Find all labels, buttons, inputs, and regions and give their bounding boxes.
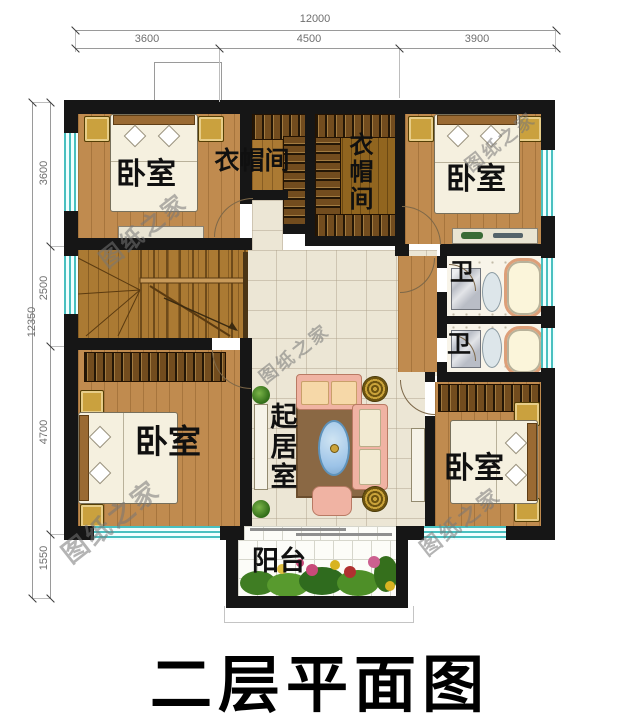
hall-floor-notch <box>252 200 283 252</box>
window <box>64 133 78 211</box>
room-label-bedroom-top-left: 卧室 <box>98 156 194 194</box>
window <box>541 328 555 368</box>
dimension-segment: 4500 <box>281 33 337 45</box>
wall <box>283 224 307 234</box>
dimension-segment: 2500 <box>38 262 50 314</box>
wall <box>305 114 315 246</box>
bathtub <box>504 258 544 318</box>
room-label-bedroom-bottom-right: 卧室 <box>424 448 524 490</box>
sink <box>482 328 502 368</box>
balcony-outline <box>224 606 414 623</box>
wall <box>437 256 447 268</box>
wall <box>64 100 555 114</box>
dimension-line <box>75 48 556 49</box>
stair-edge <box>243 252 248 338</box>
wall <box>440 244 555 256</box>
dimension-segment: 3600 <box>119 33 175 45</box>
armchair <box>312 486 352 516</box>
dimension-line <box>32 102 33 598</box>
dimension-total-height: 12350 <box>26 294 38 350</box>
nightstand <box>198 116 224 142</box>
extension-line <box>399 48 400 98</box>
wall <box>305 236 405 246</box>
dimension-segment: 3600 <box>38 147 50 199</box>
window <box>541 258 555 306</box>
dimension-segment: 4700 <box>38 406 50 458</box>
room-label-bedroom-bottom-left: 卧室 <box>106 418 230 464</box>
sliding-door <box>250 528 346 531</box>
extension-line <box>32 102 50 103</box>
wall <box>437 316 555 324</box>
room-label-balcony: 阳台 <box>246 544 312 578</box>
wardrobe <box>84 352 226 382</box>
bathtub <box>504 326 544 376</box>
dimension-total-width: 12000 <box>287 13 343 25</box>
round-mat <box>362 376 388 402</box>
room-label-cloakroom-left: 衣帽间 <box>196 146 308 176</box>
sliding-door <box>296 533 392 536</box>
floor-plan: 卧室 衣帽间 衣帽间 卧室 卫 卫 卧室 起居室 卧室 阳台 图纸之家 图纸之家… <box>0 0 640 726</box>
round-mat <box>362 486 388 512</box>
nightstand <box>84 116 110 142</box>
sofa <box>352 404 388 490</box>
wall <box>437 372 555 382</box>
window <box>64 256 78 314</box>
wall <box>395 244 409 256</box>
side-cabinet <box>411 428 425 502</box>
nightstand <box>408 116 434 142</box>
dimension-segment: 3900 <box>449 33 505 45</box>
dimension-segment: 1550 <box>38 532 50 584</box>
room-label-bath-upper: 卫 <box>447 258 477 288</box>
sink <box>482 272 502 312</box>
extension-line <box>219 48 220 102</box>
wall <box>64 338 212 350</box>
room-label-living-room: 起居室 <box>264 388 298 506</box>
flue-box <box>154 62 222 104</box>
wardrobe <box>315 134 341 218</box>
dresser <box>452 228 538 244</box>
room-label-cloakroom-right: 衣帽间 <box>342 124 374 220</box>
page-title: 二层平面图 <box>0 634 640 724</box>
dimension-line <box>50 102 51 598</box>
coffee-table <box>318 420 350 476</box>
extension-line <box>32 598 50 599</box>
nightstand <box>80 390 104 414</box>
room-label-bath-lower: 卫 <box>444 330 474 360</box>
dimension-line <box>75 30 556 31</box>
wall <box>226 540 238 602</box>
window <box>541 150 555 216</box>
wall <box>396 540 408 602</box>
